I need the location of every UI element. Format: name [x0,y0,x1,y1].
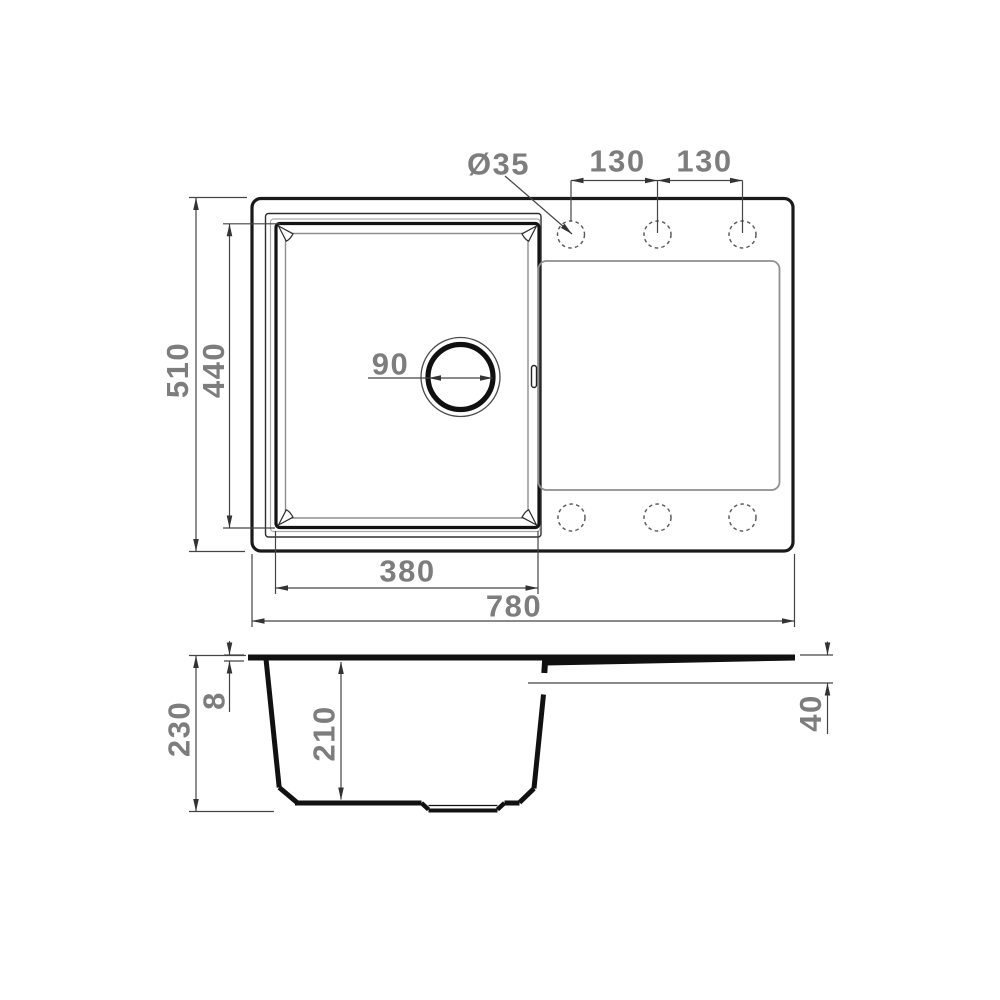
svg-text:380: 380 [379,554,435,589]
svg-text:130: 130 [589,144,645,179]
svg-text:Ø35: Ø35 [467,147,530,182]
svg-text:40: 40 [793,694,828,731]
svg-text:230: 230 [162,701,197,757]
svg-text:90: 90 [372,347,409,382]
svg-text:780: 780 [486,589,542,624]
svg-text:440: 440 [196,342,231,398]
svg-text:8: 8 [197,691,232,710]
svg-text:510: 510 [160,342,195,398]
svg-text:210: 210 [307,705,342,761]
svg-text:130: 130 [676,144,732,179]
